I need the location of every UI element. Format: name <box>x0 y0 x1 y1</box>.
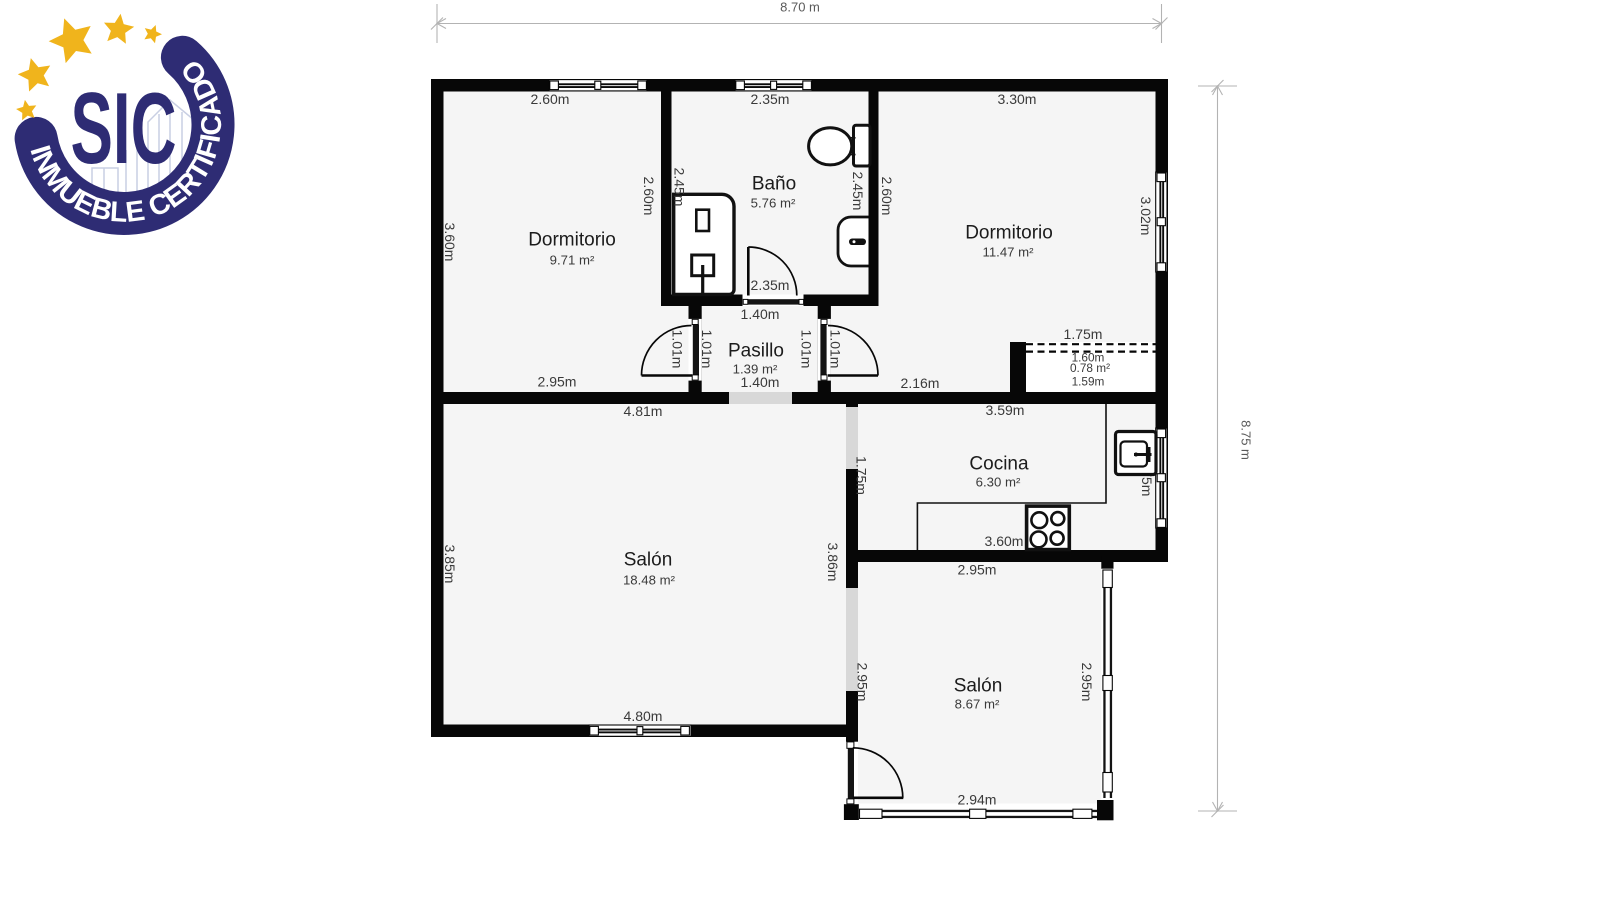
svg-text:1.01m: 1.01m <box>799 330 815 369</box>
svg-text:2.95m: 2.95m <box>538 374 577 390</box>
svg-text:3.02m: 3.02m <box>1138 197 1154 236</box>
svg-text:2.94m: 2.94m <box>958 792 997 808</box>
svg-text:1.40m: 1.40m <box>741 306 780 322</box>
svg-text:3.30m: 3.30m <box>998 91 1037 107</box>
svg-text:Salón: Salón <box>624 550 673 571</box>
svg-text:2.35m: 2.35m <box>751 91 790 107</box>
svg-text:2.45m: 2.45m <box>850 172 866 211</box>
svg-text:3.59m: 3.59m <box>986 402 1025 418</box>
svg-text:3.86m: 3.86m <box>825 543 841 582</box>
svg-text:8.75 m: 8.75 m <box>1239 420 1254 460</box>
svg-text:5.76 m²: 5.76 m² <box>751 196 796 211</box>
svg-text:3.60m: 3.60m <box>442 223 458 262</box>
svg-text:1.59m: 1.59m <box>1072 375 1105 389</box>
svg-text:SIC: SIC <box>70 72 176 184</box>
svg-text:2.60m: 2.60m <box>531 91 570 107</box>
svg-text:3.60m: 3.60m <box>985 533 1024 549</box>
svg-text:8.67 m²: 8.67 m² <box>955 697 1000 712</box>
svg-text:2.45m: 2.45m <box>672 168 688 207</box>
svg-text:1.75m: 1.75m <box>1064 326 1103 342</box>
svg-text:9.71 m²: 9.71 m² <box>550 253 595 268</box>
svg-text:2.95m: 2.95m <box>958 562 997 578</box>
svg-text:Dormitorio: Dormitorio <box>528 230 616 251</box>
svg-text:Salón: Salón <box>954 676 1003 697</box>
svg-text:Dormitorio: Dormitorio <box>965 223 1053 244</box>
svg-text:4.80m: 4.80m <box>624 708 663 724</box>
svg-text:Cocina: Cocina <box>969 454 1029 475</box>
svg-text:Pasillo: Pasillo <box>728 341 784 362</box>
svg-text:Baño: Baño <box>752 174 796 195</box>
svg-text:2.60m: 2.60m <box>641 177 657 216</box>
svg-text:1.01m: 1.01m <box>670 330 686 369</box>
svg-text:11.47 m²: 11.47 m² <box>982 245 1034 260</box>
svg-text:8.70 m: 8.70 m <box>780 0 820 15</box>
svg-text:1.01m: 1.01m <box>828 330 844 369</box>
svg-text:2.35m: 2.35m <box>751 277 790 293</box>
svg-text:2.16m: 2.16m <box>901 375 940 391</box>
svg-text:1.40m: 1.40m <box>741 374 780 390</box>
svg-text:2.60m: 2.60m <box>879 177 895 216</box>
svg-text:18.48 m²: 18.48 m² <box>623 573 676 588</box>
svg-text:2.95m: 2.95m <box>855 663 871 702</box>
svg-text:2.95m: 2.95m <box>1079 663 1095 702</box>
svg-text:1.75m: 1.75m <box>854 456 870 495</box>
svg-text:3.85m: 3.85m <box>442 545 458 584</box>
svg-text:4.81m: 4.81m <box>624 403 663 419</box>
svg-text:0.78 m²: 0.78 m² <box>1070 361 1110 375</box>
svg-text:1.01m: 1.01m <box>699 330 715 369</box>
svg-text:6.30 m²: 6.30 m² <box>976 475 1021 490</box>
